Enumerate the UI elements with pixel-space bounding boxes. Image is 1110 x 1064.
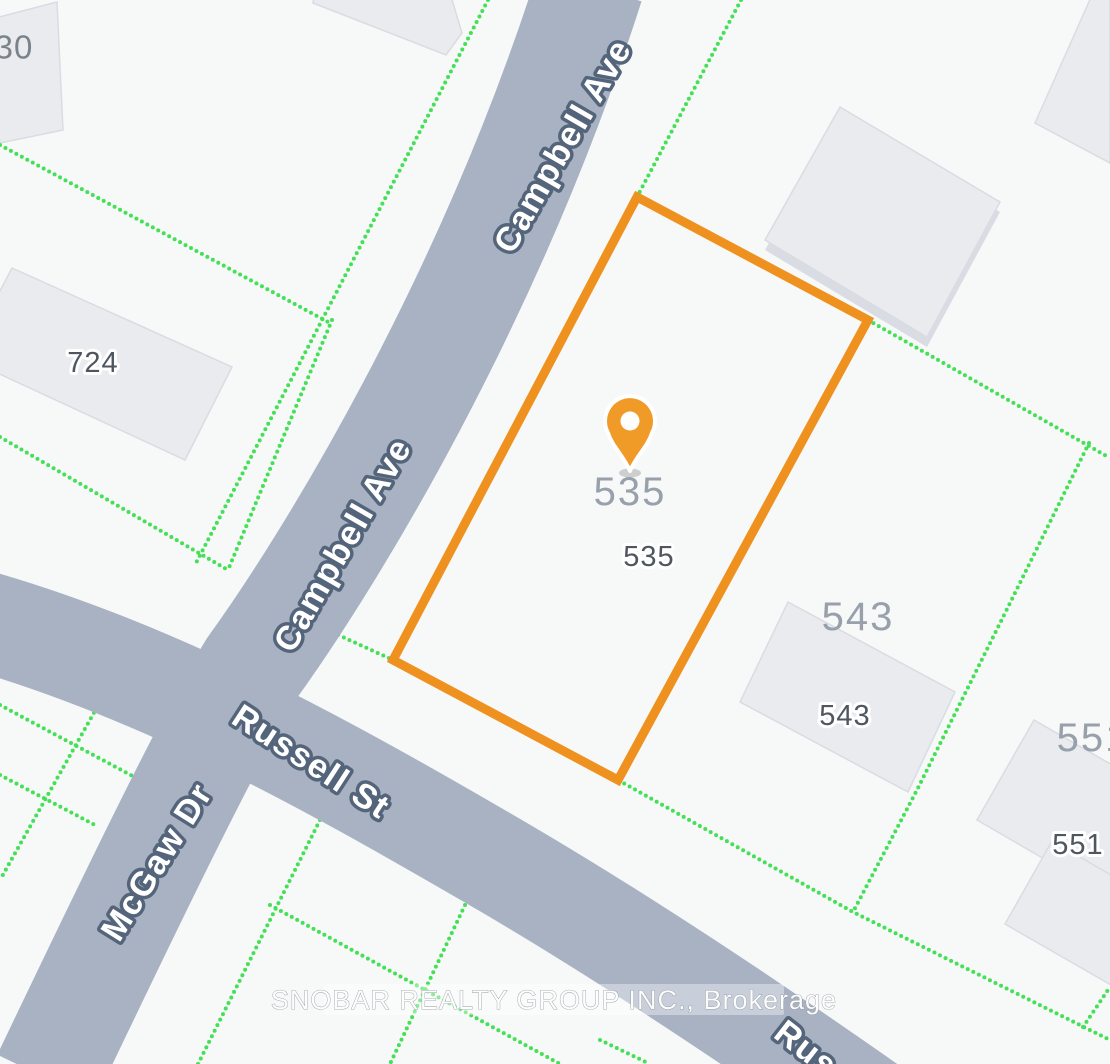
watermark-text: SNOBAR REALTY GROUP INC., Brokerage <box>271 985 837 1015</box>
pin-hole <box>621 412 640 431</box>
lot-number-543: 543 <box>822 595 895 639</box>
map-canvas[interactable]: Campbell Ave Campbell Ave Russell St McG… <box>0 0 1110 1064</box>
address-543: 543 <box>819 700 870 732</box>
address-551: 551 <box>1052 829 1103 861</box>
lot-number-551: 551 <box>1057 716 1110 760</box>
address-724: 724 <box>67 347 118 379</box>
watermark: SNOBAR REALTY GROUP INC., Brokerage <box>271 984 837 1015</box>
map-viewport[interactable]: Campbell Ave Campbell Ave Russell St McG… <box>0 0 1110 1064</box>
lot-number-730-partial: 30 <box>0 29 33 66</box>
building-730 <box>0 2 63 143</box>
address-535: 535 <box>623 541 674 573</box>
